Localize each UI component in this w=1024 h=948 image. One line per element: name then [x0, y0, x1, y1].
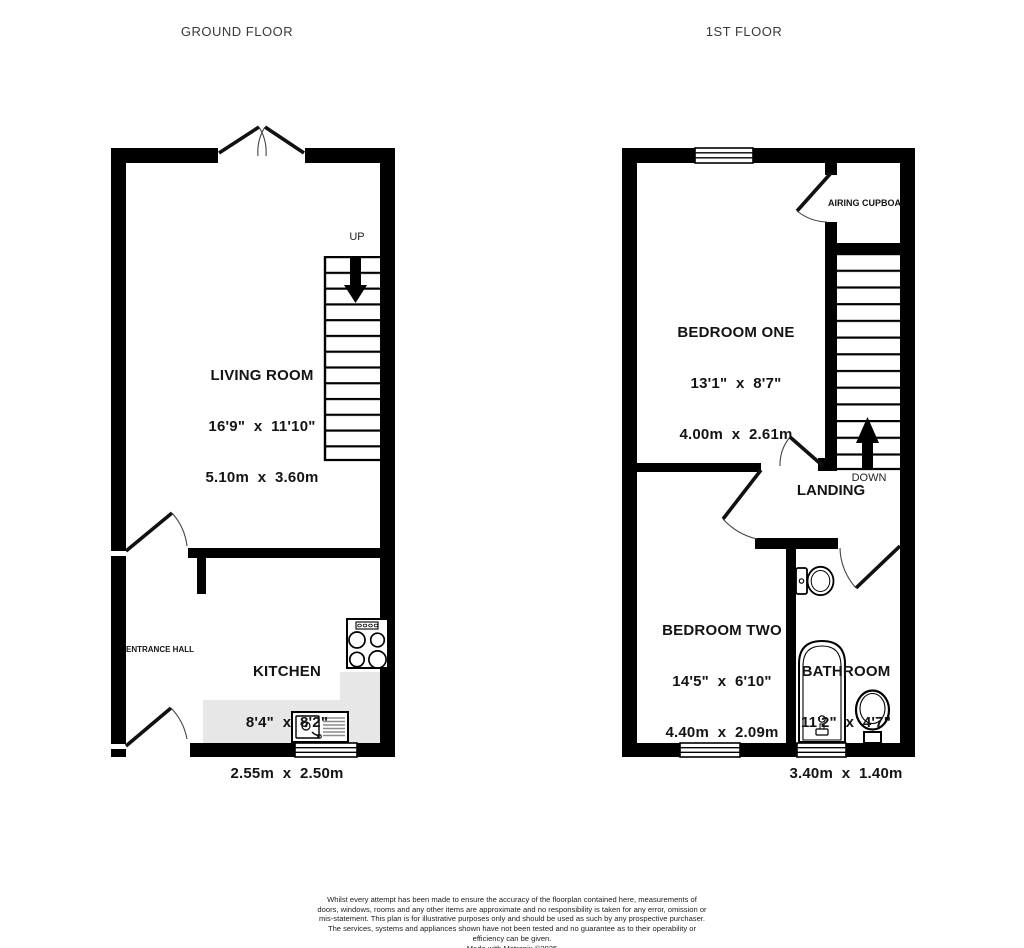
- room-dims-metric: 4.40m x 2.09m: [662, 724, 782, 741]
- disclaimer-text: Whilst every attempt has been made to en…: [316, 895, 708, 944]
- door-living-to-hall: [126, 513, 187, 551]
- airing-cupboard-door: [797, 173, 831, 222]
- room-dims-imperial: 11'2" x 4'7": [789, 714, 902, 731]
- airing-cupboard-label: AIRING CUPBOARD: [828, 197, 901, 209]
- room-dims-metric: 3.40m x 1.40m: [789, 765, 902, 782]
- bedroom-two-label: BEDROOM TWO 14'5" x 6'10" 4.40m x 2.09m: [662, 588, 782, 775]
- credit-text: Made with Metropix ©2025: [316, 944, 708, 948]
- kitchen-label: KITCHEN 8'4" x 8'2" 2.55m x 2.50m: [230, 629, 343, 816]
- room-dims-metric: 2.55m x 2.50m: [230, 765, 343, 782]
- room-name: BEDROOM ONE: [677, 324, 794, 341]
- ground-floor-title: GROUND FLOOR: [181, 24, 293, 39]
- room-name: BEDROOM TWO: [662, 622, 782, 639]
- up-label: UP: [349, 231, 364, 244]
- room-dims-imperial: 13'1" x 8'7": [677, 375, 794, 392]
- living-room-label: LIVING ROOM 16'9" x 11'10" 5.10m x 3.60m: [205, 333, 318, 520]
- room-dims-imperial: 16'9" x 11'10": [205, 418, 318, 435]
- bathroom-door: [840, 546, 900, 588]
- first-floor-title: 1ST FLOOR: [706, 24, 783, 39]
- room-dims-imperial: 14'5" x 6'10": [662, 673, 782, 690]
- stove-icon: [347, 619, 388, 668]
- toilet-icon: [796, 567, 834, 595]
- floorplan-page: GROUND FLOOR 1ST FLOOR LIVING ROOM 16'9"…: [0, 0, 1024, 948]
- room-dims-imperial: 8'4" x 8'2": [230, 714, 343, 731]
- room-dims-metric: 4.00m x 2.61m: [677, 426, 794, 443]
- bedroom-one-label: BEDROOM ONE 13'1" x 8'7" 4.00m x 2.61m: [677, 290, 794, 477]
- front-door: [126, 708, 187, 746]
- landing-label: LANDING: [797, 483, 865, 499]
- bedroom-two-door: [723, 470, 761, 539]
- entrance-hall-label: ENTRANCE HALL: [126, 645, 194, 655]
- room-dims-metric: 5.10m x 3.60m: [205, 469, 318, 486]
- bathroom-label: BATHROOM 11'2" x 4'7" 3.40m x 1.40m: [789, 629, 902, 816]
- french-doors: [219, 127, 304, 156]
- down-label: DOWN: [852, 472, 887, 485]
- room-name: BATHROOM: [789, 663, 902, 680]
- room-name: LIVING ROOM: [205, 367, 318, 384]
- footer: Whilst every attempt has been made to en…: [316, 895, 708, 948]
- window-first-top: [695, 148, 753, 163]
- room-name: KITCHEN: [230, 663, 343, 680]
